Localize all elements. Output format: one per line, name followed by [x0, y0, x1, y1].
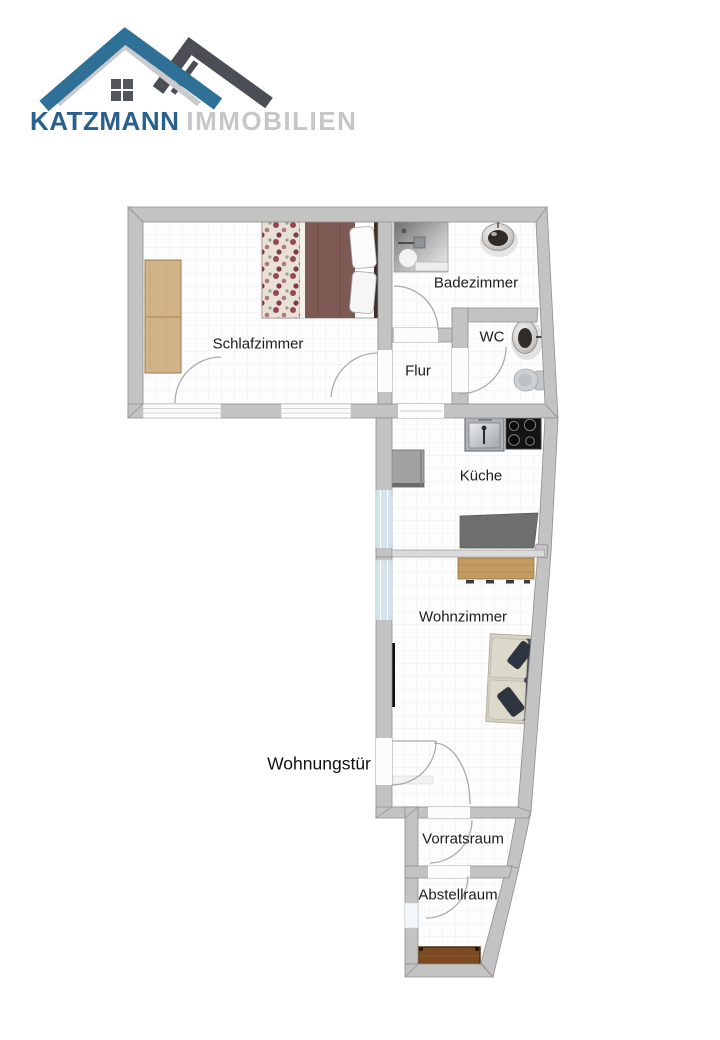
- door-opening-bathroom: [394, 328, 438, 342]
- door-opening-wc: [452, 348, 468, 392]
- floorplan-page: KATZMANNIMMOBILIEN: [0, 0, 720, 1040]
- bed-sheet-fold: [300, 222, 305, 318]
- shower: [394, 220, 448, 272]
- bed-floral-blanket: [262, 222, 300, 318]
- wall-left-upper: [128, 207, 143, 418]
- wall-bottom: [405, 964, 493, 977]
- kitchen-sink: [465, 418, 504, 451]
- room-label-kueche: Küche: [460, 468, 503, 485]
- stove: [506, 418, 541, 449]
- window-bedroom-2: [281, 404, 351, 418]
- door-opening-bedroom: [378, 350, 392, 392]
- room-label-schlafzimmer: Schlafzimmer: [213, 336, 304, 353]
- window-bedroom-1: [143, 404, 221, 418]
- door-opening-entrance: [376, 738, 392, 785]
- floorplan-drawing: [0, 0, 720, 1040]
- toilet: [514, 369, 544, 391]
- floor-area: [128, 207, 558, 977]
- shower-head: [414, 237, 425, 248]
- wall-top: [128, 207, 547, 222]
- room-label-flur: Flur: [405, 363, 431, 380]
- shower-drain: [399, 249, 417, 267]
- wardrobe: [145, 260, 181, 373]
- door-opening-storage: [428, 866, 470, 878]
- wall-storage-left: [405, 807, 418, 964]
- annotation-entrance-door: Wohnungstür: [267, 754, 371, 775]
- bed: [262, 222, 380, 318]
- window-storage: [405, 903, 418, 928]
- shower-ledge: [415, 262, 448, 271]
- window-kitchen: [376, 490, 392, 548]
- room-label-vorratsraum: Vorratsraum: [422, 831, 504, 848]
- kitchen-livingroom-partition: [392, 550, 545, 557]
- room-label-wc: WC: [480, 329, 505, 346]
- room-label-badezimmer: Badezimmer: [434, 275, 518, 292]
- room-label-wohnzimmer: Wohnzimmer: [419, 609, 507, 626]
- window-livingroom: [376, 560, 392, 620]
- door-opening-pantry: [428, 807, 470, 818]
- room-label-abstellraum: Abstellraum: [418, 887, 497, 904]
- fridge: [392, 450, 424, 487]
- kitchen-counter: [460, 513, 538, 548]
- bed-brown-blanket: [305, 222, 355, 318]
